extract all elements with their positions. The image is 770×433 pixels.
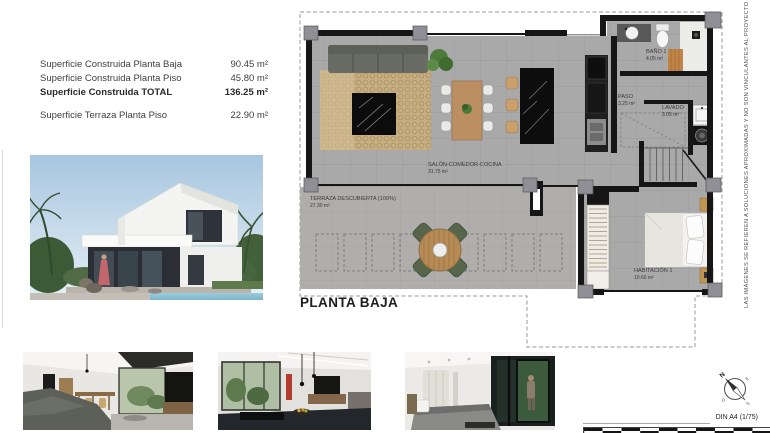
room-area-lavado: 3.05 m²: [662, 112, 679, 118]
room-area-bano: 4.05 m²: [646, 56, 663, 62]
plan-sheet-page: Superficie Construida Planta Baja 90.45 …: [0, 0, 770, 433]
coffee-table: [352, 93, 396, 135]
bathroom-vanity: [617, 24, 651, 42]
surface-label: Superficie Construida Planta Piso: [40, 72, 182, 86]
surface-label: Superficie Terraza Planta Piso: [40, 109, 167, 123]
compass-n: N: [719, 371, 727, 380]
room-area-paso: 3.25 m²: [618, 101, 635, 107]
terrace-dining-set: [411, 221, 468, 278]
toilet: [656, 24, 669, 48]
compass-s: S: [745, 401, 751, 407]
bed: [645, 213, 709, 267]
compass-e: E: [744, 376, 750, 382]
wardrobe: [587, 192, 609, 289]
sheet-rule-line: [583, 423, 710, 424]
room-area-habitacion: 10.60 m²: [634, 275, 654, 281]
surface-row: Superficie Construida Planta Baja 90.45 …: [40, 58, 268, 72]
room-label-lavado: LAVADO: [662, 105, 685, 111]
disclaimer-text: LAS IMÁGENES SE REFIEREN A SOLUCIONES AP…: [744, 13, 755, 308]
room-label-paso: PASO: [618, 94, 634, 100]
villa-exterior-render: [30, 155, 263, 300]
plan-title: PLANTA BAJA: [300, 295, 398, 310]
graphic-scale-bar: [583, 427, 770, 433]
room-label-terraza: TERRAZA DESCUBIERTA (100%): [310, 196, 396, 202]
surface-value: 45.80 m²: [231, 72, 269, 86]
page-edge-line: [2, 150, 3, 328]
interior-render-living: [23, 352, 193, 430]
surface-areas-table: Superficie Construida Planta Baja 90.45 …: [40, 58, 268, 123]
surface-value: 22.90 m²: [231, 109, 269, 123]
bath-mat: [668, 49, 683, 71]
interior-render-kitchen: [218, 352, 371, 430]
interior-render-bedroom: [405, 352, 555, 430]
room-label-habitacion: HABITACIÓN 1: [634, 267, 672, 274]
surface-label: Superficie Construida TOTAL: [40, 86, 172, 100]
surface-row-total: Superficie Construida TOTAL 136.25 m²: [40, 86, 268, 100]
shower-head: [692, 31, 700, 39]
dining-set: [441, 81, 493, 140]
room-area-terraza: 27.30 m²: [310, 203, 330, 209]
compass-o: O: [720, 397, 726, 403]
sheet-format-label: DIN A4 (1/75): [700, 414, 758, 421]
shower-floor: [680, 22, 707, 71]
surface-row: Superficie Construida Planta Piso 45.80 …: [40, 72, 268, 86]
surface-row: Superficie Terraza Planta Piso 22.90 m²: [40, 109, 268, 123]
surface-value: 90.45 m²: [231, 58, 269, 72]
surface-value: 136.25 m²: [225, 86, 268, 100]
surface-label: Superficie Construida Planta Baja: [40, 58, 182, 72]
kitchen-counter: [585, 55, 608, 152]
room-label-bano: BAÑO 1: [646, 48, 667, 55]
room-area-salon: 31.75 m²: [428, 169, 448, 175]
kitchen-island: [506, 68, 554, 144]
room-label-salon: SALÓN-COMEDOR-COCINA: [428, 161, 502, 168]
sofa: [328, 45, 428, 73]
compass-rose: N E S O: [712, 365, 758, 416]
